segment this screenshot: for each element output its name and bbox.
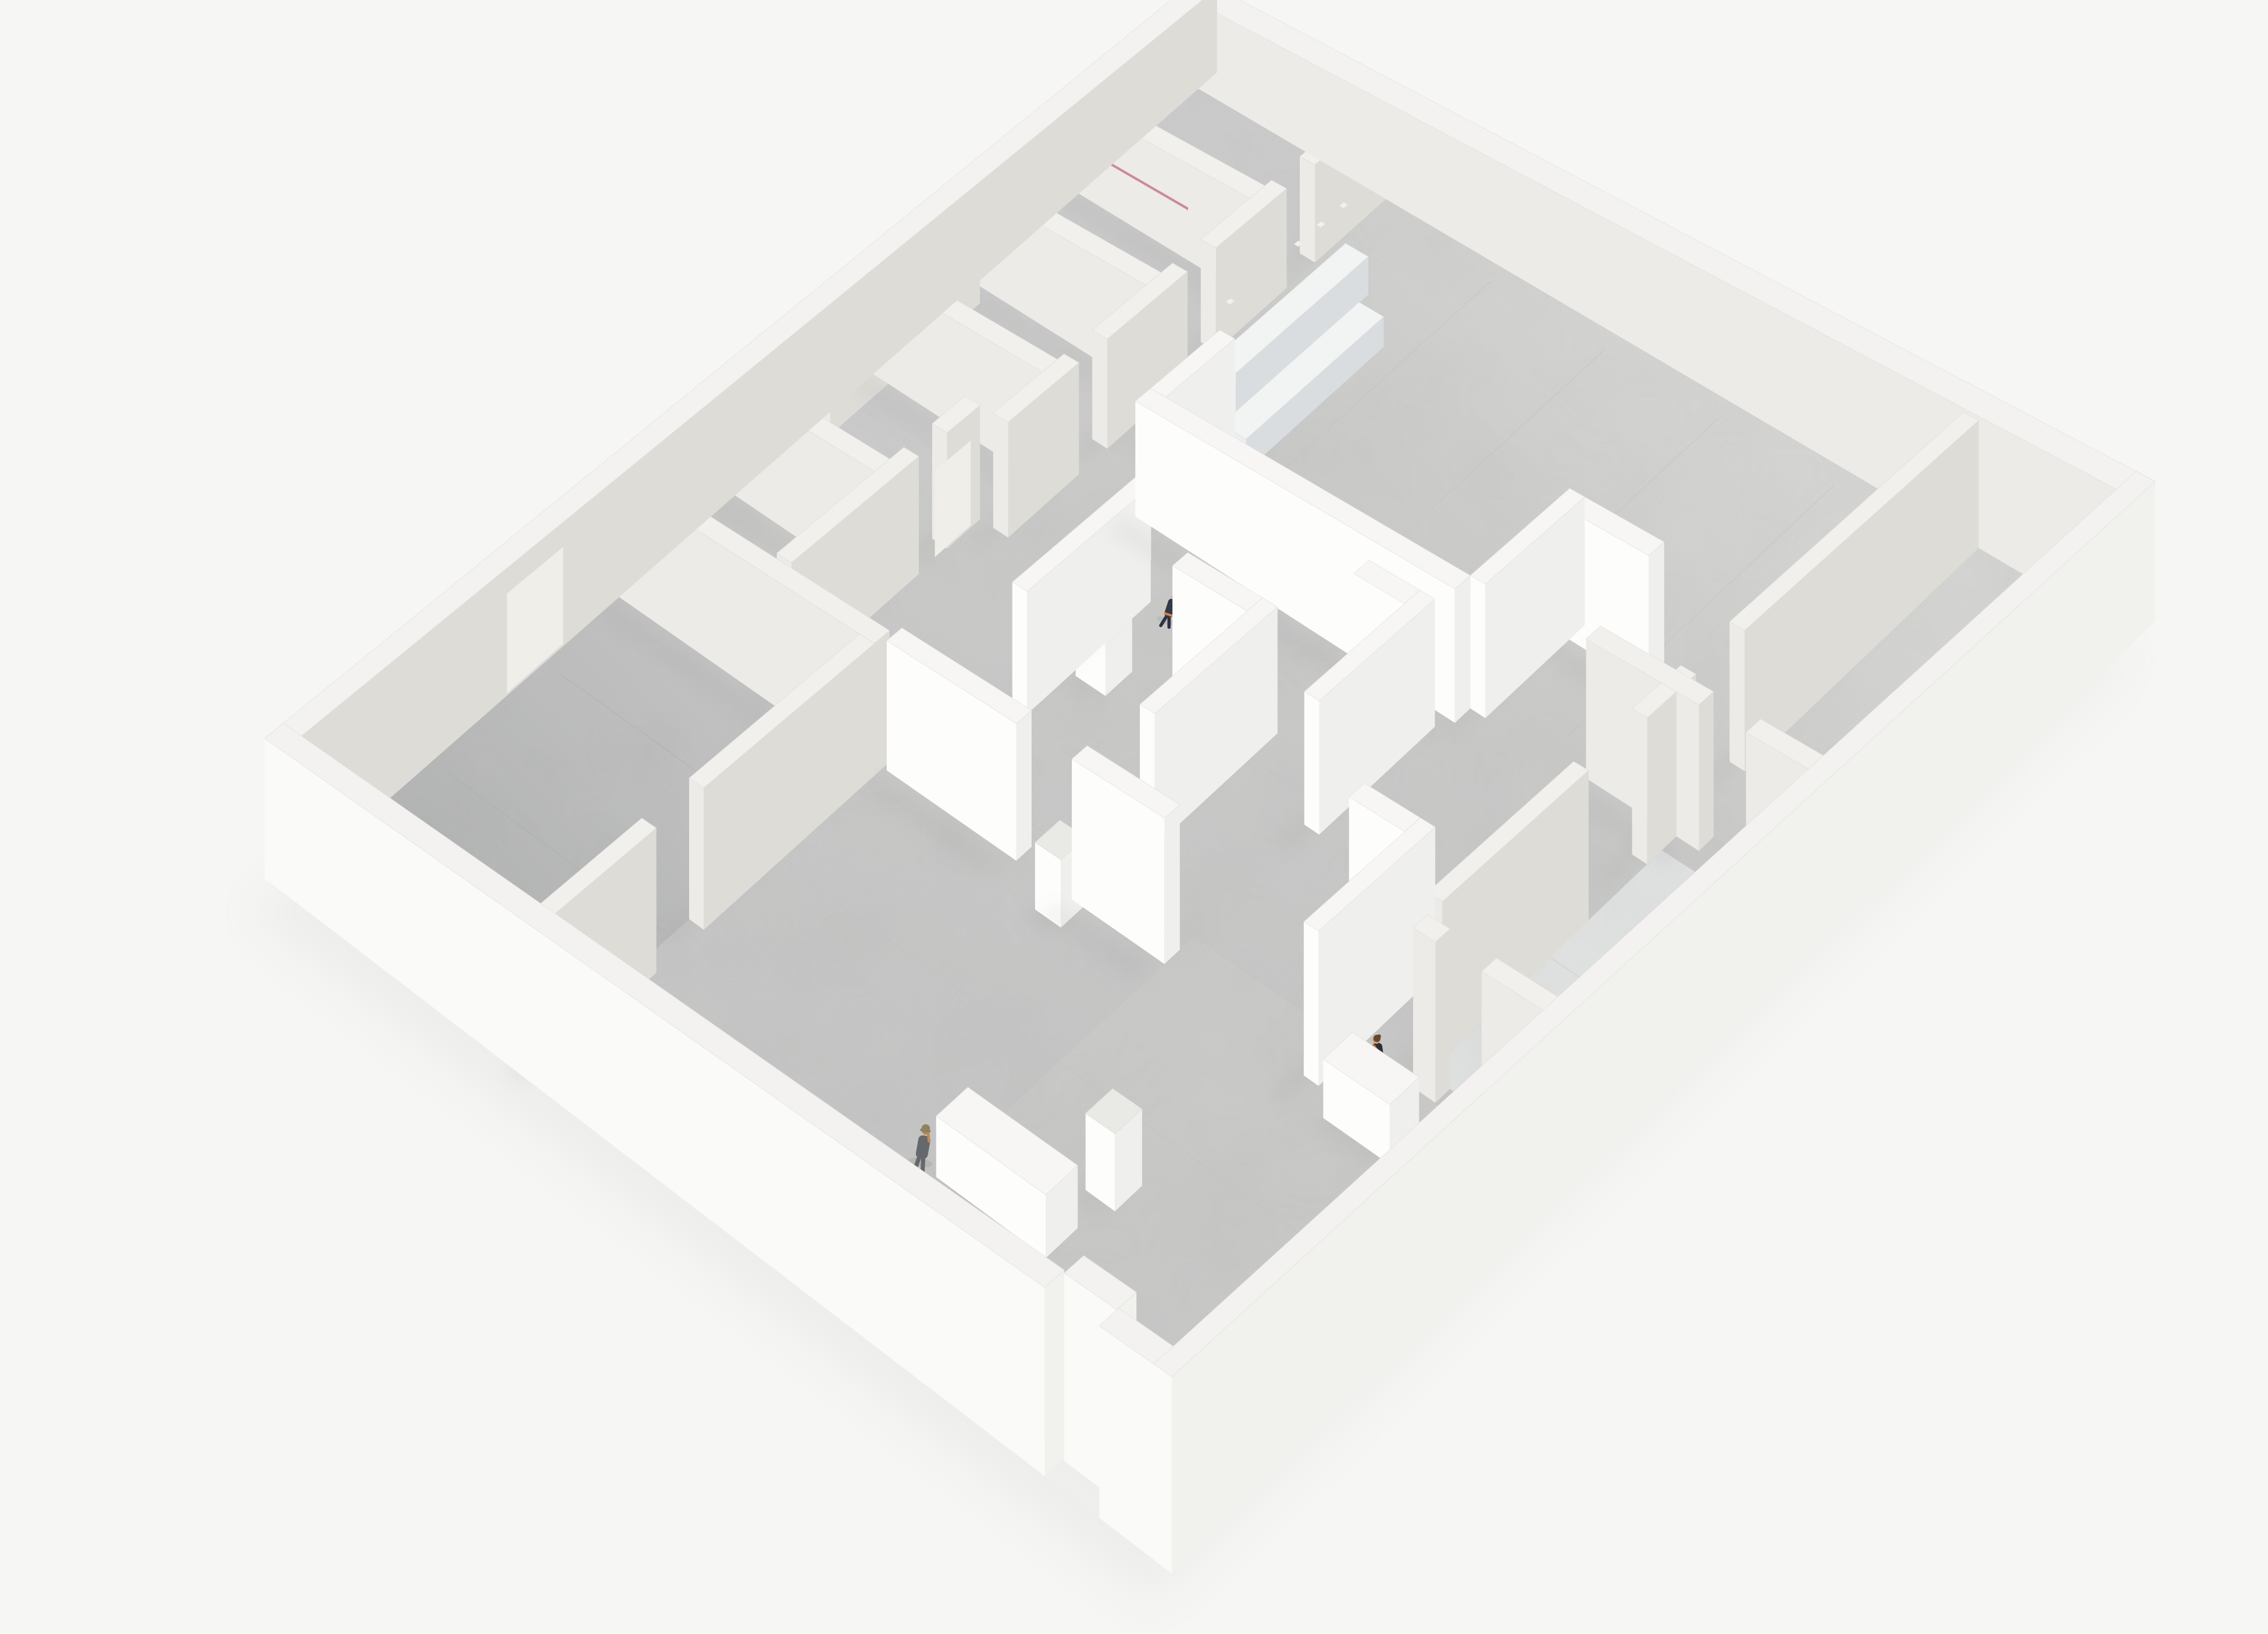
floorplan-render (0, 0, 2268, 1634)
scene-svg (0, 0, 2268, 1634)
